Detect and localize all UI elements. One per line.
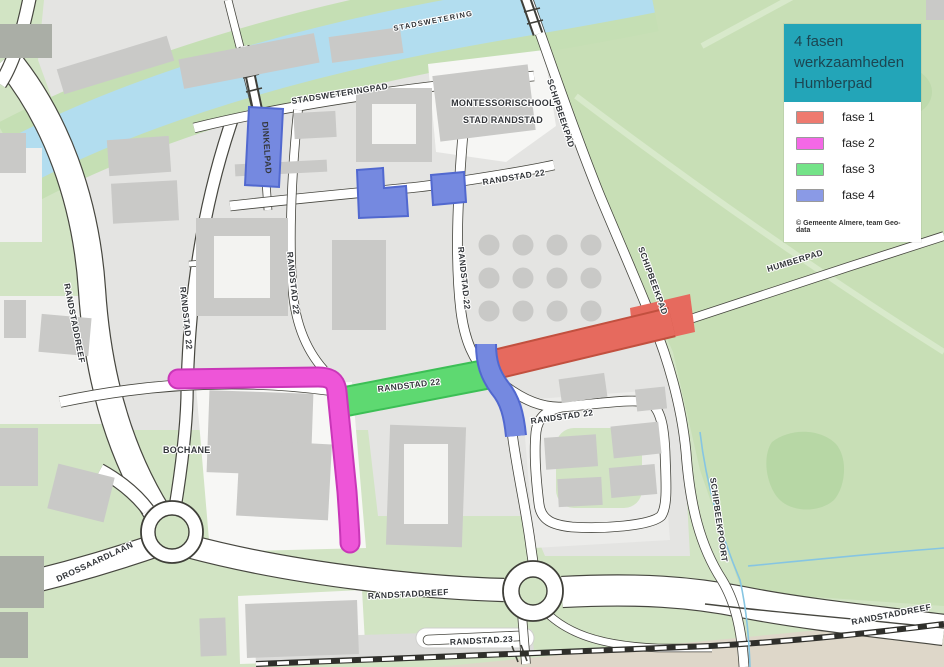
legend-item-fase4: fase 4	[796, 188, 911, 202]
legend-item-fase1: fase 1	[796, 110, 911, 124]
building-round	[547, 268, 568, 289]
legend-item-fase3: fase 3	[796, 162, 911, 176]
building-courtyard	[372, 104, 416, 144]
building-round	[513, 301, 534, 322]
legend-item-fase2: fase 2	[796, 136, 911, 150]
building-round	[479, 235, 500, 256]
fase4-patch-east	[431, 172, 466, 205]
building	[4, 300, 26, 338]
building	[236, 440, 332, 521]
fase1-label: fase 1	[842, 110, 875, 124]
fase3-swatch	[796, 163, 824, 176]
building-round	[479, 268, 500, 289]
building	[544, 434, 598, 470]
legend-body: fase 1 fase 2 fase 3 fase 4 © Gemeente A…	[784, 102, 921, 242]
label-montessorischool-2: STAD RANDSTAD	[463, 115, 543, 125]
building-round	[513, 235, 534, 256]
building	[0, 428, 38, 486]
roundabout-east-island	[519, 577, 547, 605]
building-round	[547, 235, 568, 256]
fase1-swatch	[796, 111, 824, 124]
building	[609, 464, 657, 498]
building	[199, 618, 226, 657]
fase3-label: fase 3	[842, 162, 875, 176]
fase4-label: fase 4	[842, 188, 875, 202]
building	[245, 600, 359, 658]
legend-attribution: © Gemeente Almere, team Geo-data	[796, 214, 911, 238]
building	[107, 136, 171, 176]
building-round	[547, 301, 568, 322]
fase4-swatch	[796, 189, 824, 202]
fase2-swatch	[796, 137, 824, 150]
label-bochane: BOCHANE	[163, 445, 211, 455]
legend-title: 4 fasen werkzaamheden Humberpad	[784, 24, 921, 102]
building	[0, 556, 44, 608]
building	[293, 111, 336, 139]
building-round	[581, 301, 602, 322]
building-round	[581, 235, 602, 256]
building	[926, 0, 944, 20]
building	[610, 422, 661, 459]
legend: 4 fasen werkzaamheden Humberpad fase 1 f…	[784, 24, 921, 242]
building	[0, 24, 52, 58]
roundabout-west-island	[155, 515, 189, 549]
building-round	[581, 268, 602, 289]
building-round	[479, 301, 500, 322]
legend-title-line: werkzaamheden	[794, 52, 911, 73]
building	[0, 133, 26, 173]
fase2-label: fase 2	[842, 136, 875, 150]
label-montessorischool-1: MONTESSORISCHOOL	[451, 98, 555, 108]
legend-title-line: 4 fasen	[794, 31, 911, 52]
tree-patch	[766, 432, 844, 510]
legend-title-line: Humberpad	[794, 73, 911, 94]
map-page: STADSWETERING STADSWETERINGPAD DINKELPAD…	[0, 0, 944, 667]
building	[0, 612, 28, 658]
building	[635, 386, 667, 411]
building	[111, 180, 179, 223]
building	[557, 477, 602, 507]
building-courtyard	[404, 444, 448, 524]
building-courtyard	[214, 236, 270, 298]
building-round	[513, 268, 534, 289]
building	[332, 240, 386, 330]
